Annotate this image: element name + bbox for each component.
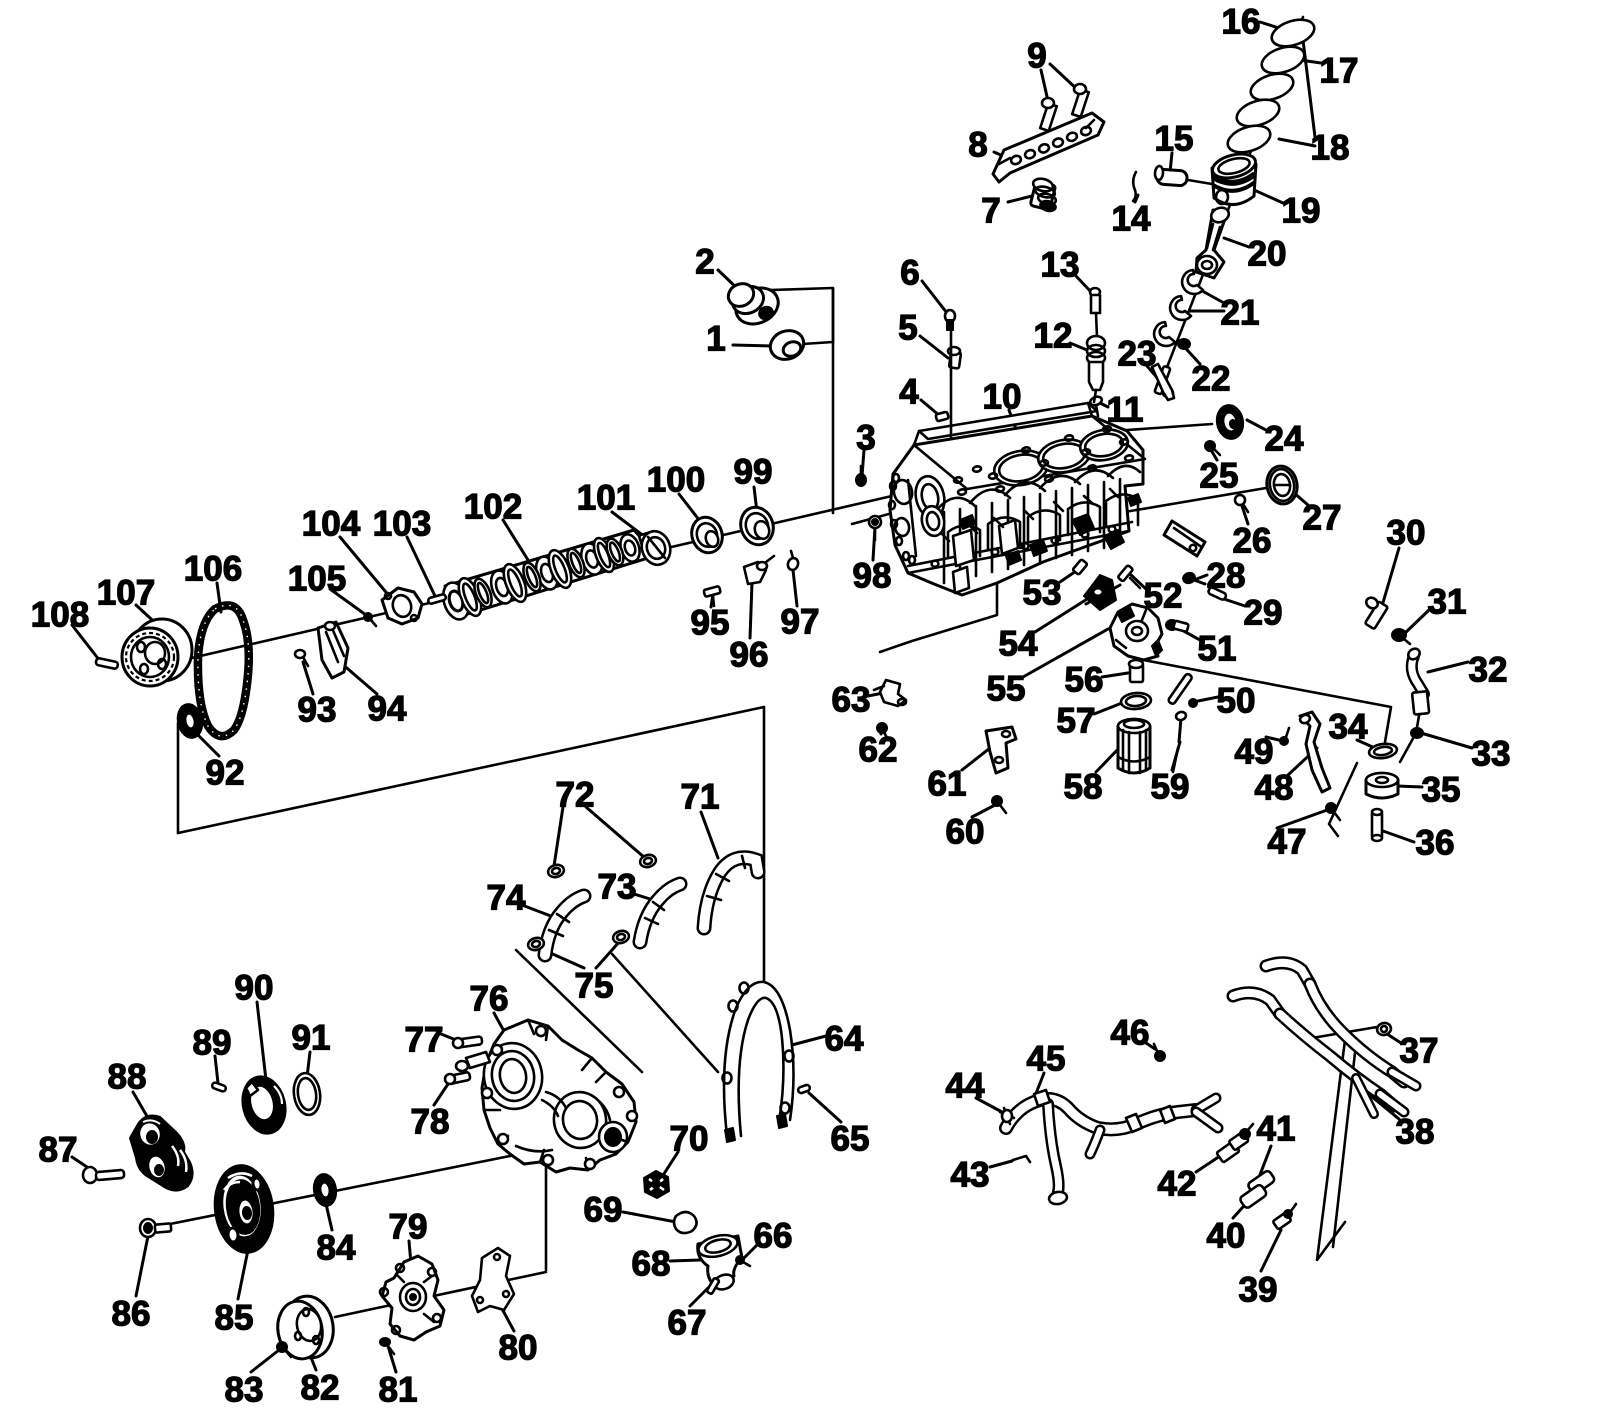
svg-text:92: 92 [206,754,245,793]
svg-text:68: 68 [632,1245,671,1284]
svg-text:8: 8 [968,126,987,165]
svg-text:25: 25 [1200,457,1239,496]
svg-text:64: 64 [825,1020,864,1059]
svg-text:77: 77 [405,1021,444,1060]
svg-text:76: 76 [470,980,509,1019]
svg-text:41: 41 [1257,1110,1296,1149]
svg-text:45: 45 [1027,1040,1066,1079]
svg-text:24: 24 [1265,420,1304,459]
svg-text:66: 66 [754,1217,793,1256]
svg-text:97: 97 [781,603,820,642]
svg-text:69: 69 [584,1191,623,1230]
svg-text:27: 27 [1303,499,1342,538]
svg-text:102: 102 [464,488,522,527]
svg-text:91: 91 [292,1019,331,1058]
svg-text:99: 99 [734,453,773,492]
svg-text:2: 2 [695,243,714,282]
svg-text:108: 108 [31,596,89,635]
svg-text:5: 5 [898,309,917,348]
svg-text:33: 33 [1472,735,1511,774]
svg-text:39: 39 [1239,1271,1278,1310]
svg-text:85: 85 [215,1299,254,1338]
svg-text:71: 71 [681,778,720,817]
svg-text:103: 103 [373,505,431,544]
svg-text:105: 105 [288,560,346,599]
svg-text:94: 94 [368,690,407,729]
svg-text:40: 40 [1207,1217,1246,1256]
svg-text:84: 84 [317,1229,356,1268]
svg-text:32: 32 [1469,651,1508,690]
svg-text:17: 17 [1320,52,1359,91]
svg-text:42: 42 [1158,1165,1197,1204]
svg-text:18: 18 [1311,129,1350,168]
svg-text:14: 14 [1112,200,1151,239]
svg-text:48: 48 [1255,769,1294,808]
svg-text:36: 36 [1416,824,1455,863]
svg-text:54: 54 [999,625,1038,664]
svg-text:100: 100 [647,461,705,500]
svg-text:93: 93 [298,691,337,730]
svg-text:13: 13 [1041,246,1080,285]
svg-text:19: 19 [1282,192,1321,231]
svg-text:28: 28 [1207,557,1246,596]
svg-text:9: 9 [1027,37,1046,76]
svg-text:78: 78 [411,1103,450,1142]
svg-text:59: 59 [1151,768,1190,807]
svg-text:29: 29 [1244,594,1283,633]
svg-text:82: 82 [301,1369,340,1408]
svg-text:4: 4 [899,373,919,412]
svg-text:107: 107 [97,574,155,613]
svg-text:79: 79 [389,1208,428,1247]
svg-text:47: 47 [1268,823,1307,862]
svg-text:26: 26 [1233,522,1272,561]
svg-text:53: 53 [1023,574,1062,613]
svg-text:83: 83 [225,1371,264,1410]
svg-text:75: 75 [575,967,614,1006]
svg-text:65: 65 [831,1120,870,1159]
svg-text:43: 43 [951,1156,990,1195]
svg-text:63: 63 [832,681,871,720]
svg-text:11: 11 [1107,391,1144,430]
svg-text:49: 49 [1235,733,1274,772]
svg-text:89: 89 [193,1024,232,1063]
svg-text:21: 21 [1221,294,1260,333]
svg-text:23: 23 [1118,335,1157,374]
svg-text:30: 30 [1387,514,1426,553]
svg-text:87: 87 [39,1131,78,1170]
svg-text:58: 58 [1064,768,1103,807]
svg-text:16: 16 [1222,3,1261,42]
svg-text:96: 96 [730,636,769,675]
svg-text:20: 20 [1248,235,1287,274]
svg-text:73: 73 [598,868,637,907]
svg-text:34: 34 [1329,708,1368,747]
svg-text:12: 12 [1034,317,1073,356]
svg-text:98: 98 [853,557,892,596]
svg-text:81: 81 [379,1371,418,1410]
svg-text:3: 3 [856,419,875,458]
svg-text:101: 101 [577,479,635,518]
svg-text:1: 1 [706,320,725,359]
svg-text:31: 31 [1428,583,1467,622]
svg-text:7: 7 [981,192,1000,231]
svg-text:72: 72 [556,776,595,815]
svg-text:10: 10 [983,378,1022,417]
svg-text:74: 74 [487,879,526,918]
svg-text:22: 22 [1192,360,1231,399]
svg-text:37: 37 [1400,1032,1439,1071]
svg-text:46: 46 [1111,1014,1150,1053]
svg-text:95: 95 [691,604,730,643]
svg-text:38: 38 [1396,1113,1435,1152]
svg-text:51: 51 [1198,630,1237,669]
svg-text:44: 44 [946,1067,985,1106]
svg-text:70: 70 [670,1120,709,1159]
svg-text:55: 55 [987,670,1026,709]
svg-text:86: 86 [112,1295,151,1334]
svg-text:104: 104 [302,505,361,544]
svg-text:52: 52 [1144,577,1183,616]
svg-text:6: 6 [900,254,919,293]
svg-text:56: 56 [1065,661,1104,700]
svg-text:35: 35 [1422,771,1461,810]
svg-text:67: 67 [668,1304,707,1343]
svg-text:88: 88 [108,1058,147,1097]
svg-text:15: 15 [1155,120,1194,159]
svg-text:62: 62 [859,731,898,770]
svg-text:61: 61 [928,765,967,804]
svg-text:80: 80 [499,1329,538,1368]
svg-text:90: 90 [235,969,274,1008]
svg-text:50: 50 [1217,682,1256,721]
svg-text:57: 57 [1057,702,1096,741]
svg-text:60: 60 [946,813,985,852]
svg-text:106: 106 [184,550,242,589]
